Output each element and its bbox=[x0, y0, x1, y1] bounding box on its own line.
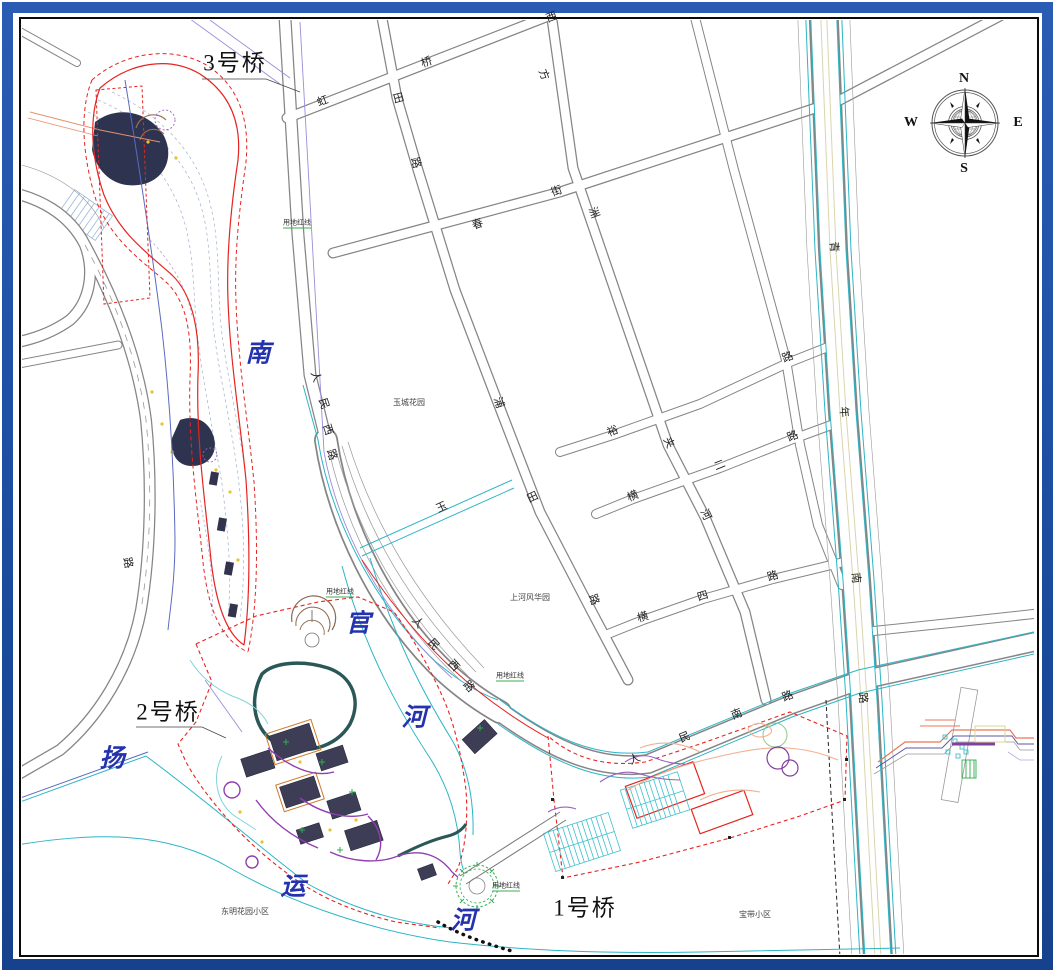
area-label: 上河风华园 bbox=[510, 594, 550, 602]
central-park bbox=[190, 596, 497, 898]
compass-direction-letter: S bbox=[960, 162, 968, 176]
land-redline-label: 用地红线 bbox=[492, 883, 520, 892]
road-name-character: 路 bbox=[856, 692, 868, 704]
compass-direction-letter: N bbox=[959, 72, 969, 86]
road-name-character: 年 bbox=[837, 406, 849, 418]
compass-rose bbox=[930, 88, 1000, 158]
site-plan-drawing: 3号桥2号桥1号桥 南官河扬运河 虹桥西方洲田路春街人民西路浦玉田裕路二路横夹河… bbox=[0, 0, 1055, 972]
bridge-label: 2号桥 bbox=[136, 701, 200, 724]
land-redline-label: 用地红线 bbox=[496, 673, 524, 682]
road-name-character: 路 bbox=[120, 556, 133, 569]
river-name-character: 运 bbox=[280, 875, 305, 900]
map-canvas bbox=[0, 0, 1055, 972]
river-name-character: 扬 bbox=[99, 747, 124, 772]
boundary-markers bbox=[551, 758, 848, 879]
road-name-character: 青 bbox=[827, 241, 839, 253]
river-name-character: 河 bbox=[450, 909, 475, 934]
bridge-label: 3号桥 bbox=[203, 52, 267, 75]
bridge-label: 1号桥 bbox=[553, 897, 617, 920]
embankment-detail bbox=[874, 687, 1052, 802]
river-name-character: 官 bbox=[345, 612, 370, 637]
label-leaders bbox=[136, 79, 300, 738]
river-name-character: 河 bbox=[401, 706, 426, 731]
area-label: 玉城花园 bbox=[393, 399, 425, 407]
area-label: 宝带小区 bbox=[739, 911, 771, 919]
road-name-character: 南 bbox=[849, 572, 861, 584]
compass-direction-letter: W bbox=[904, 116, 918, 130]
river-name-character: 南 bbox=[245, 342, 270, 367]
land-redline-label: 用地红线 bbox=[326, 589, 354, 598]
land-redline-label: 用地红线 bbox=[283, 220, 311, 229]
compass-direction-letter: E bbox=[1013, 116, 1022, 130]
area-label: 东明花园小区 bbox=[221, 908, 269, 916]
